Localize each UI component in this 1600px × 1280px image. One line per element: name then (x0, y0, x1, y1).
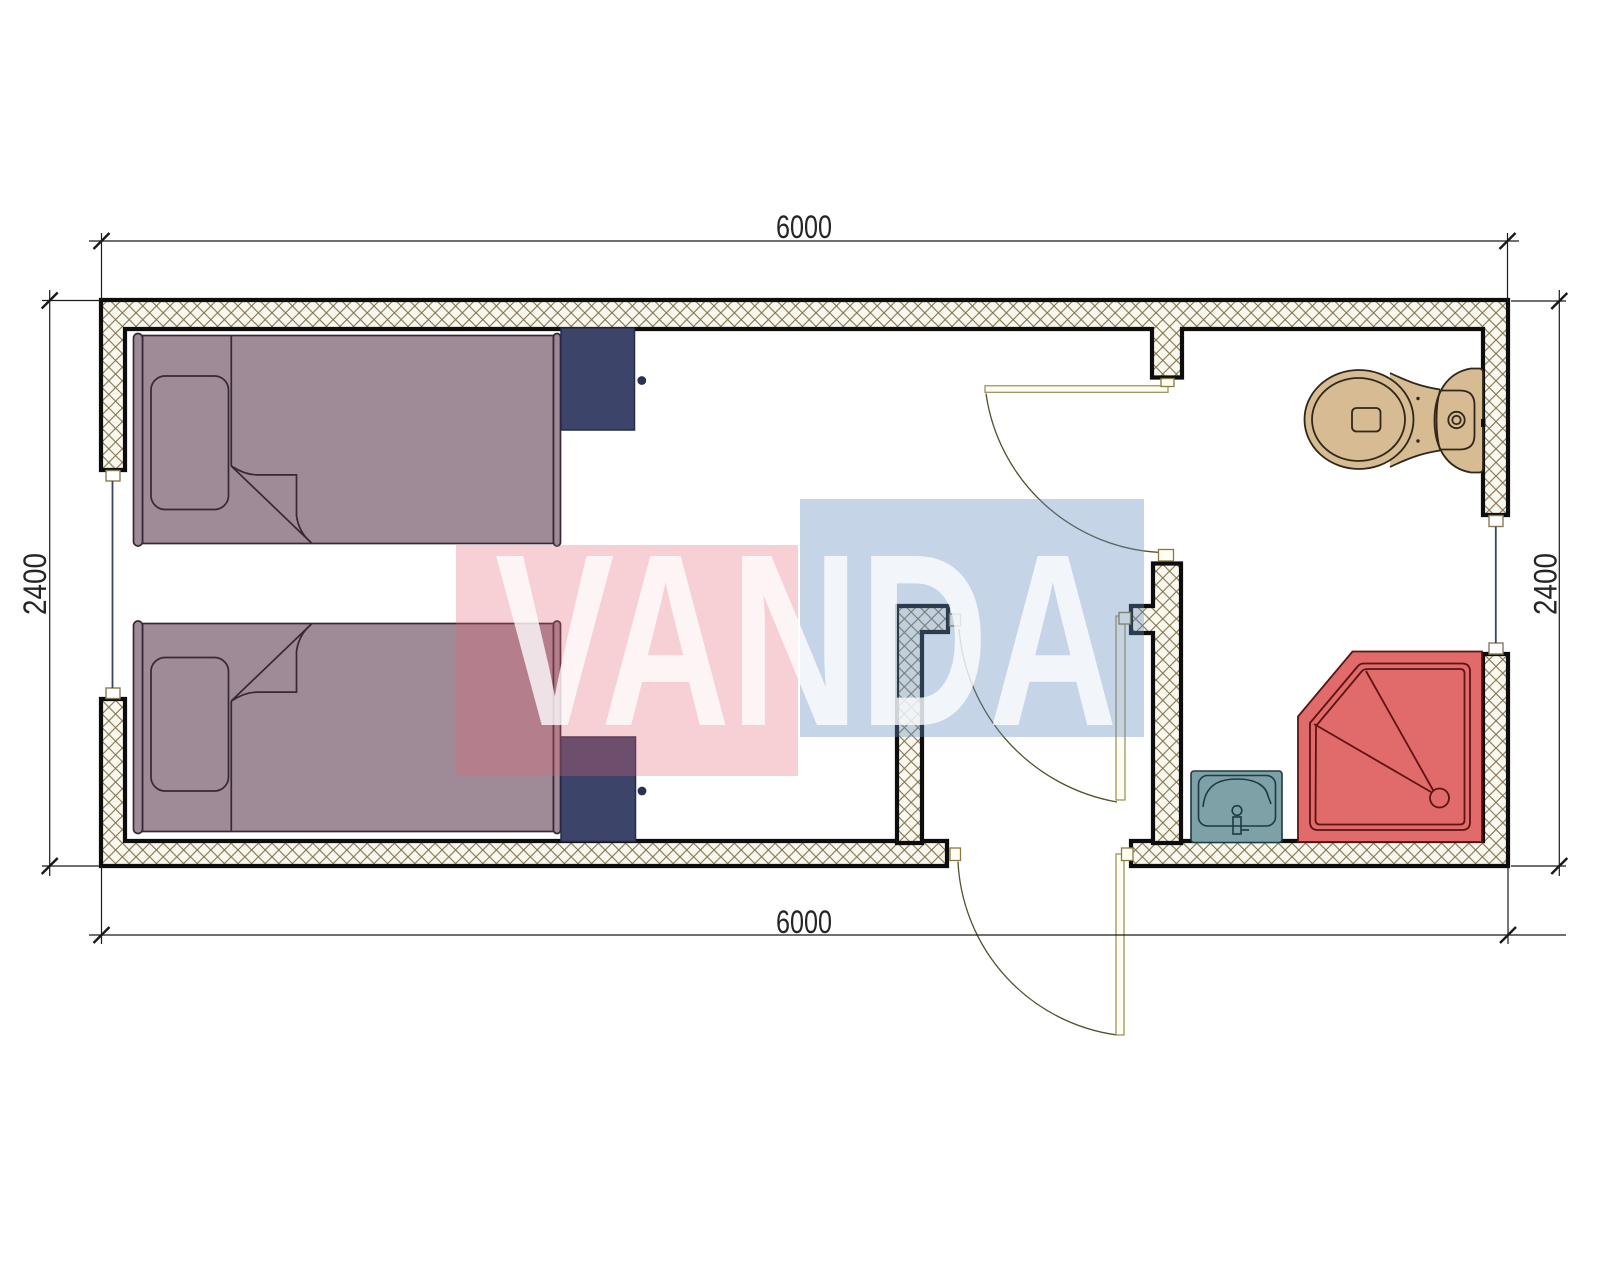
svg-text:6000: 6000 (776, 209, 832, 245)
svg-text:2400: 2400 (1528, 553, 1564, 615)
svg-text:2400: 2400 (17, 553, 53, 615)
svg-text:6000: 6000 (776, 904, 832, 940)
svg-text:VANDA: VANDA (495, 503, 1117, 777)
